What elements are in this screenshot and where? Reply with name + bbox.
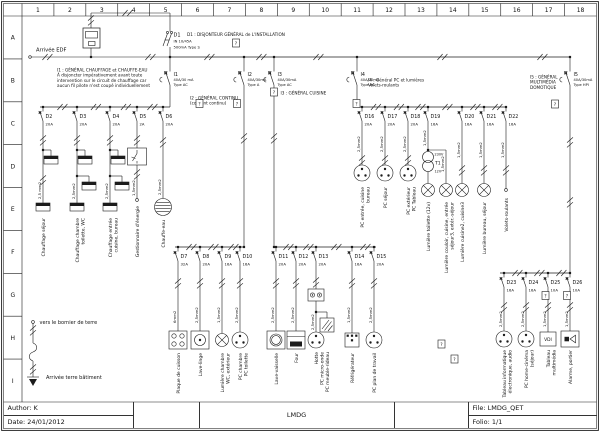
placeholder-icon-8: ?: [451, 355, 458, 363]
rcd-I2: I240A/30mAType AI2 : GÉNÉRAL CONTINU(cou…: [190, 56, 267, 247]
svg-text:IN 10/45A: IN 10/45A: [174, 40, 193, 44]
svg-text:Volets-roulants: Volets-roulants: [368, 83, 399, 88]
svg-text:16: 16: [513, 7, 521, 14]
svg-text:D4: D4: [113, 114, 120, 120]
svg-text:1,5mm2: 1,5mm2: [131, 180, 136, 196]
svg-text:PC chambrePC toilette: PC chambrePC toilette: [238, 353, 249, 380]
svg-text:D25: D25: [551, 280, 561, 286]
placeholder-icon-4: ?: [271, 88, 278, 96]
svg-text:230V: 230V: [435, 153, 444, 157]
svg-text:40A/30mA: 40A/30mA: [278, 78, 297, 82]
svg-text:16A: 16A: [529, 288, 537, 293]
svg-text:20A: 20A: [279, 262, 287, 267]
circuit-D10: D1016A2,5mm2PC chambrePC toilette: [232, 246, 252, 380]
svg-text:Chauffage chambretoilette, WC: Chauffage chambretoilette, WC: [75, 218, 86, 263]
earth-circuit: vers le bornier de terreArrivée terre bâ…: [27, 320, 102, 386]
svg-text:G: G: [10, 292, 15, 299]
circuit-group-5: D2316A2,5mm2Tableau informatiqueélectron…: [496, 270, 582, 399]
svg-text:Réfrigérateur: Réfrigérateur: [349, 353, 356, 383]
svg-text:2,5mm2: 2,5mm2: [520, 311, 525, 327]
svg-text:2,5mm2: 2,5mm2: [157, 179, 162, 195]
svg-text:Type A: Type A: [247, 83, 260, 87]
circuit-D21: D2116A1,5mm2Lumière bureau, séjour: [478, 106, 497, 254]
title-block-author: Author: K: [4, 402, 133, 416]
svg-text:HottePC micro-ondePC meuble-ri: HottePC micro-ondePC meuble-rideau: [314, 352, 331, 392]
svg-text:Lumière toilette (12v): Lumière toilette (12v): [425, 202, 432, 251]
circuit-D15: D1520A2,5mm2PC plan de travail: [366, 246, 386, 393]
placeholder-icon-6: ?: [552, 100, 559, 108]
svg-text:20A: 20A: [299, 262, 307, 267]
svg-text:D5: D5: [140, 114, 147, 120]
svg-text:20A: 20A: [46, 122, 54, 127]
svg-text:1,5mm2: 1,5mm2: [346, 307, 351, 323]
svg-text:D2: D2: [46, 114, 53, 120]
placeholder-icon-5: ?: [353, 100, 360, 108]
svg-text:20A: 20A: [203, 262, 211, 267]
svg-text:Lumière bureau, séjour: Lumière bureau, séjour: [481, 202, 488, 254]
svg-text:1: 1: [36, 7, 40, 14]
svg-text:1,5mm2: 1,5mm2: [216, 307, 221, 323]
svg-text:Gestionnaire d'énergie: Gestionnaire d'énergie: [134, 206, 141, 257]
svg-text:D: D: [10, 163, 15, 170]
circuit-D26: D2610A1,5mm2Alarme, portier: [561, 272, 582, 384]
svg-text:16A: 16A: [431, 122, 439, 127]
svg-text:D21: D21: [487, 114, 497, 120]
title-block-author-date: Author: K Date: 24/01/2012: [4, 402, 134, 428]
svg-text:16A: 16A: [355, 262, 363, 267]
main-breaker: D1IN 10/45A500mA Type SD1 : DISJONTEUR G…: [163, 13, 285, 57]
svg-text:2,5mm2: 2,5mm2: [402, 136, 407, 152]
svg-text:E: E: [11, 206, 15, 213]
svg-text:PC entrée, cuisinebureau: PC entrée, cuisinebureau: [359, 187, 371, 228]
svg-text:12: 12: [385, 7, 393, 14]
svg-text:20A: 20A: [388, 122, 396, 127]
svg-text:20A: 20A: [319, 262, 327, 267]
svg-text:2: 2: [68, 7, 72, 14]
svg-text:Arrivée terre bâtiment: Arrivée terre bâtiment: [46, 374, 102, 381]
svg-text:Chauffage séjour: Chauffage séjour: [40, 218, 47, 256]
svg-text:11: 11: [353, 7, 361, 14]
svg-text:D15: D15: [377, 254, 387, 260]
rcd-note-I1: I1 : GÉNÉRAL CHAUFFAGE et CHAUFFE-EAUÀ d…: [57, 68, 150, 89]
svg-text:vers le bornier de terre: vers le bornier de terre: [40, 320, 98, 326]
svg-text:I3 : GÉNÉRAL CUISINE: I3 : GÉNÉRAL CUISINE: [281, 91, 327, 96]
schematic-canvas: 123456789101112131415161718ABCDEFGHIArri…: [0, 0, 600, 432]
svg-text:2,5mm2: 2,5mm2: [379, 136, 384, 152]
svg-text:32A: 32A: [181, 262, 189, 267]
svg-text:1,5mm2: 1,5mm2: [564, 311, 569, 327]
svg-text:14: 14: [449, 7, 457, 14]
svg-text:16A: 16A: [509, 122, 517, 127]
svg-text:1,5mm2: 1,5mm2: [500, 142, 505, 158]
svg-text:20A: 20A: [377, 262, 385, 267]
svg-text:6mm2: 6mm2: [172, 310, 177, 323]
svg-text:aucun fil pilote n'est coupé i: aucun fil pilote n'est coupé individuell…: [57, 83, 150, 88]
placeholder-icon-9: ?: [542, 292, 549, 300]
svg-text:D1 : DISJONTEUR GÉNÉRAL de L'I: D1 : DISJONTEUR GÉNÉRAL de L'INSTALLATIO…: [187, 32, 285, 37]
circuit-D8: D820A2,5mm2Lave-linge: [191, 246, 210, 376]
svg-text:PC extérieurPC Tableau: PC extérieurPC Tableau: [405, 187, 417, 215]
svg-text:D7: D7: [181, 254, 188, 260]
title-block-file-folio: File: LMDG_QET Folio: 1/1: [469, 402, 597, 428]
svg-text:16A: 16A: [487, 122, 495, 127]
circuit-D12: D1220A2,5mm2Four: [287, 246, 308, 363]
svg-text:2,5mm2: 2,5mm2: [356, 136, 361, 152]
svg-text:1,5mm2: 1,5mm2: [456, 142, 461, 158]
svg-text:D10: D10: [243, 254, 253, 260]
rcd-note-I3: I3 : GÉNÉRAL CUISINE: [281, 91, 327, 96]
circuit-D16: D1620A2,5mm2PC entrée, cuisinebureau: [354, 106, 374, 228]
rcd-I1: I140A/30 mAType ACI1 : GÉNÉRAL CHAUFFAGE…: [57, 56, 194, 107]
svg-text:16A: 16A: [243, 262, 251, 267]
circuit-group-3: D1120A2,5mm2Lave-vaisselleD1220A2,5mm2Fo…: [267, 244, 386, 393]
svg-text:Lumière cuisine2, cuisine3: Lumière cuisine2, cuisine3: [459, 202, 466, 262]
svg-text:D11: D11: [279, 254, 289, 260]
svg-text:A: A: [11, 35, 16, 42]
circuit-group-2: D732A6mm2Plaque de cuissonD820A2,5mm2Lav…: [169, 244, 252, 394]
svg-text:6: 6: [196, 7, 200, 14]
title-block-date: Date: 24/01/2012: [4, 416, 133, 429]
svg-text:Tableau informatiqueélectroniq: Tableau informatiqueélectronique, audio: [502, 350, 513, 399]
svg-text:Lumière couloir, cuisine, entr: Lumière couloir, cuisine, entréeséjour3,…: [443, 202, 455, 273]
circuit-D7: D732A6mm2Plaque de cuisson: [169, 246, 188, 394]
svg-text:D8: D8: [203, 254, 210, 260]
circuit-D4: D420A2,5mm2Chauffage entréecuisine, bure…: [103, 106, 129, 257]
svg-text:Four: Four: [294, 353, 300, 363]
svg-text:1,5mm2: 1,5mm2: [478, 142, 483, 158]
svg-text:2,5mm2: 2,5mm2: [310, 314, 315, 330]
svg-text:1,5mm2: 1,5mm2: [542, 311, 547, 327]
schematic-page: 123456789101112131415161718ABCDEFGHIArri…: [0, 0, 600, 432]
title-block-spacer-2: [395, 402, 469, 428]
svg-text:D9: D9: [225, 254, 232, 260]
circuit-D20: D2016A1,5mm2Lumière cuisine2, cuisine3: [456, 106, 475, 262]
svg-text:20A: 20A: [166, 122, 174, 127]
rcd-note-I4: I4 : Général PC et lumièresVolets-roulan…: [368, 78, 424, 88]
svg-text:Alarme, portier: Alarme, portier: [568, 350, 574, 384]
placeholder-icon-10: ?: [564, 292, 571, 300]
circuit-D18: D1820A2,5mm2PC extérieurPC Tableau: [400, 106, 420, 215]
svg-text:2,5mm2: 2,5mm2: [270, 307, 275, 323]
svg-text:40A/30 mA: 40A/30 mA: [174, 78, 194, 82]
svg-text:F: F: [11, 249, 15, 256]
svg-text:Type HPI: Type HPI: [573, 83, 589, 87]
energy-meter-icon: [83, 28, 100, 48]
svg-text:VDI: VDI: [544, 337, 552, 343]
svg-text:D19: D19: [431, 114, 441, 120]
svg-text:D18: D18: [411, 114, 421, 120]
svg-text:2,5mm2: 2,5mm2: [71, 183, 76, 199]
supply-circuit: Arrivée EDFD1IN 10/45A500mA Type SD1 : D…: [29, 10, 570, 60]
placeholder-icon-7: ?: [438, 340, 445, 348]
svg-text:20A: 20A: [113, 122, 121, 127]
svg-text:8: 8: [259, 7, 263, 14]
circuit-D19: D1916A1,5mm2230VT112VLumière toilette (1…: [422, 106, 456, 273]
svg-text:2,5mm2: 2,5mm2: [194, 307, 199, 323]
svg-text:2,5mm2: 2,5mm2: [104, 183, 109, 199]
circuit-D24: D2416A2,5mm2PC home-cinéma(séjour): [518, 272, 538, 388]
svg-text:10: 10: [321, 7, 329, 14]
rcd-note-I5: I5 : GÉNÉRALMULTIMÉDIADOMOTIQUE: [530, 75, 558, 90]
svg-text:20A: 20A: [80, 122, 88, 127]
svg-text:Type AC: Type AC: [277, 83, 293, 87]
svg-text:D23: D23: [507, 280, 517, 286]
svg-text:16A: 16A: [225, 262, 233, 267]
circuit-D25: D2510A1,5mm2VDITableaumultimédia: [540, 272, 560, 376]
svg-text:20A: 20A: [411, 122, 419, 127]
svg-text:15: 15: [481, 7, 489, 14]
svg-text:10A: 10A: [551, 288, 559, 293]
svg-text:1,5mm2: 1,5mm2: [422, 130, 427, 146]
svg-text:Volets-roulants: Volets-roulants: [504, 197, 510, 231]
svg-text:Chauffe-eau: Chauffe-eau: [161, 220, 167, 248]
svg-text:DOMOTIQUE: DOMOTIQUE: [530, 85, 557, 90]
svg-text:D22: D22: [509, 114, 519, 120]
svg-text:20A: 20A: [365, 122, 373, 127]
circuit-D13: D1320A2,5mm2HottePC micro-ondePC meuble-…: [308, 246, 334, 392]
svg-text:2,5mm2: 2,5mm2: [290, 307, 295, 323]
title-block-folio: Folio: 1/1: [469, 416, 597, 429]
svg-text:PC séjour: PC séjour: [382, 187, 389, 208]
svg-text:2A: 2A: [140, 122, 145, 127]
svg-text:D13: D13: [319, 254, 329, 260]
svg-text:2,5mm2: 2,5mm2: [234, 307, 239, 323]
svg-text:13: 13: [417, 7, 425, 14]
title-block-spacer: [134, 402, 200, 428]
svg-text:D14: D14: [355, 254, 365, 260]
svg-text:Tableaumultimédia: Tableaumultimédia: [546, 350, 557, 376]
svg-text:Lave-vaisselle: Lave-vaisselle: [274, 353, 280, 385]
svg-text:Type AC: Type AC: [173, 83, 189, 87]
svg-text:C: C: [11, 120, 15, 127]
circuit-D6: D620A2,5mm2Chauffe-eau: [155, 106, 174, 248]
circuit-D5: D52A1,5mm2Gestionnaire d'énergie: [128, 106, 147, 257]
title-block: Author: K Date: 24/01/2012 LMDG File: LM…: [4, 402, 597, 428]
svg-text:10A: 10A: [573, 288, 581, 293]
svg-text:D20: D20: [465, 114, 475, 120]
svg-text:D12: D12: [299, 254, 309, 260]
circuit-D22: D2216A1,5mm2Volets-roulants: [500, 106, 518, 232]
svg-text:D24: D24: [529, 280, 539, 286]
rcd-I5: I540A/30mAType HPII5 : GÉNÉRALMULTIMÉDIA…: [530, 56, 593, 273]
svg-text:500mA Type S: 500mA Type S: [174, 46, 201, 50]
svg-text:Lave-linge: Lave-linge: [198, 353, 204, 377]
svg-text:16A: 16A: [507, 288, 515, 293]
svg-text:Arrivée EDF: Arrivée EDF: [36, 47, 67, 54]
svg-text:Chauffage entréecuisine, burea: Chauffage entréecuisine, bureau: [107, 218, 119, 257]
svg-text:17: 17: [545, 7, 553, 14]
svg-text:D26: D26: [573, 280, 583, 286]
svg-text:Lumière chambreWC, extérieur: Lumière chambreWC, extérieur: [219, 353, 231, 393]
svg-text:H: H: [11, 335, 16, 342]
placeholder-icon-1: ?: [233, 39, 240, 47]
svg-text:D6: D6: [166, 114, 173, 120]
circuit-group-1: D220A2,5 mm2Chauffage séjourD320A2,5mm2C…: [36, 104, 173, 262]
svg-text:2,5 mm2: 2,5 mm2: [37, 181, 42, 199]
svg-text:D16: D16: [365, 114, 375, 120]
svg-text:2,5mm2: 2,5mm2: [498, 311, 503, 327]
circuit-D14: D1416A1,5mm2Réfrigérateur: [345, 246, 364, 383]
placeholder-icon-3: ?: [234, 100, 241, 108]
svg-text:PC home-cinéma(séjour): PC home-cinéma(séjour): [523, 350, 535, 388]
svg-text:16A: 16A: [465, 122, 473, 127]
svg-text:18: 18: [577, 7, 585, 14]
svg-text:1,5mm2: 1,5mm2: [440, 156, 445, 172]
svg-text:D17: D17: [388, 114, 398, 120]
circuit-D2: D220A2,5 mm2Chauffage séjour: [36, 106, 58, 256]
svg-text:7: 7: [228, 7, 232, 14]
svg-text:(courant continu): (courant continu): [190, 101, 227, 106]
circuit-D17: D1720A2,5mm2PC séjour: [377, 106, 397, 208]
circuit-D9: D916A1,5mm2Lumière chambreWC, extérieur: [216, 246, 233, 393]
placeholder-icon-2: ?: [196, 100, 203, 108]
rcd-I3: I340A/30mAType ACI3 : GÉNÉRAL CUISINE: [264, 56, 327, 247]
title-block-project: LMDG: [200, 402, 395, 428]
circuit-D23: D2316A2,5mm2Tableau informatiqueélectron…: [496, 272, 516, 399]
svg-text:D3: D3: [80, 114, 87, 120]
svg-text:Plaque de cuisson: Plaque de cuisson: [176, 353, 182, 394]
circuit-D11: D1120A2,5mm2Lave-vaisselle: [267, 246, 288, 385]
svg-text:I: I: [12, 378, 14, 385]
svg-text:PC plan de travail: PC plan de travail: [372, 353, 378, 393]
circuit-D3: D320A2,5mm2Chauffage chambretoilette, WC: [70, 106, 96, 262]
svg-text:2,5mm2: 2,5mm2: [368, 307, 373, 323]
circuit-group-4: D1620A2,5mm2PC entrée, cuisinebureauD172…: [354, 104, 518, 273]
svg-text:40A/30mA: 40A/30mA: [574, 78, 593, 82]
svg-text:B: B: [11, 78, 15, 85]
svg-text:D1: D1: [174, 33, 181, 39]
svg-text:9: 9: [291, 7, 295, 14]
title-block-file: File: LMDG_QET: [469, 402, 597, 416]
